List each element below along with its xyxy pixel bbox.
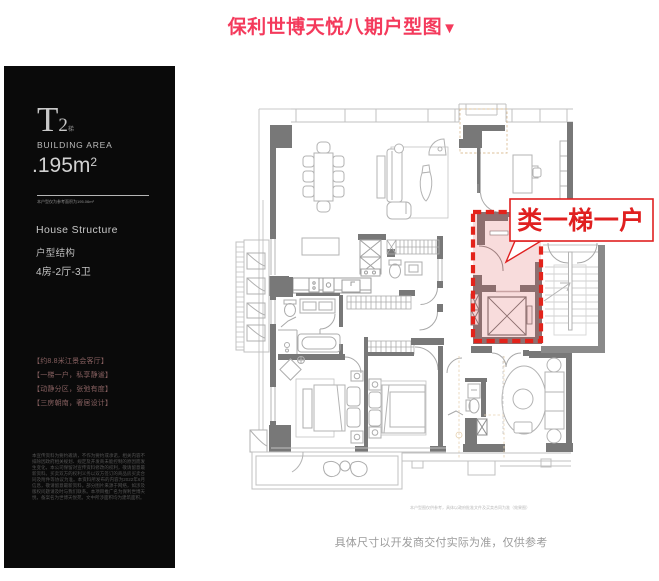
svg-text:类一梯一户: 类一梯一户 (517, 206, 645, 235)
